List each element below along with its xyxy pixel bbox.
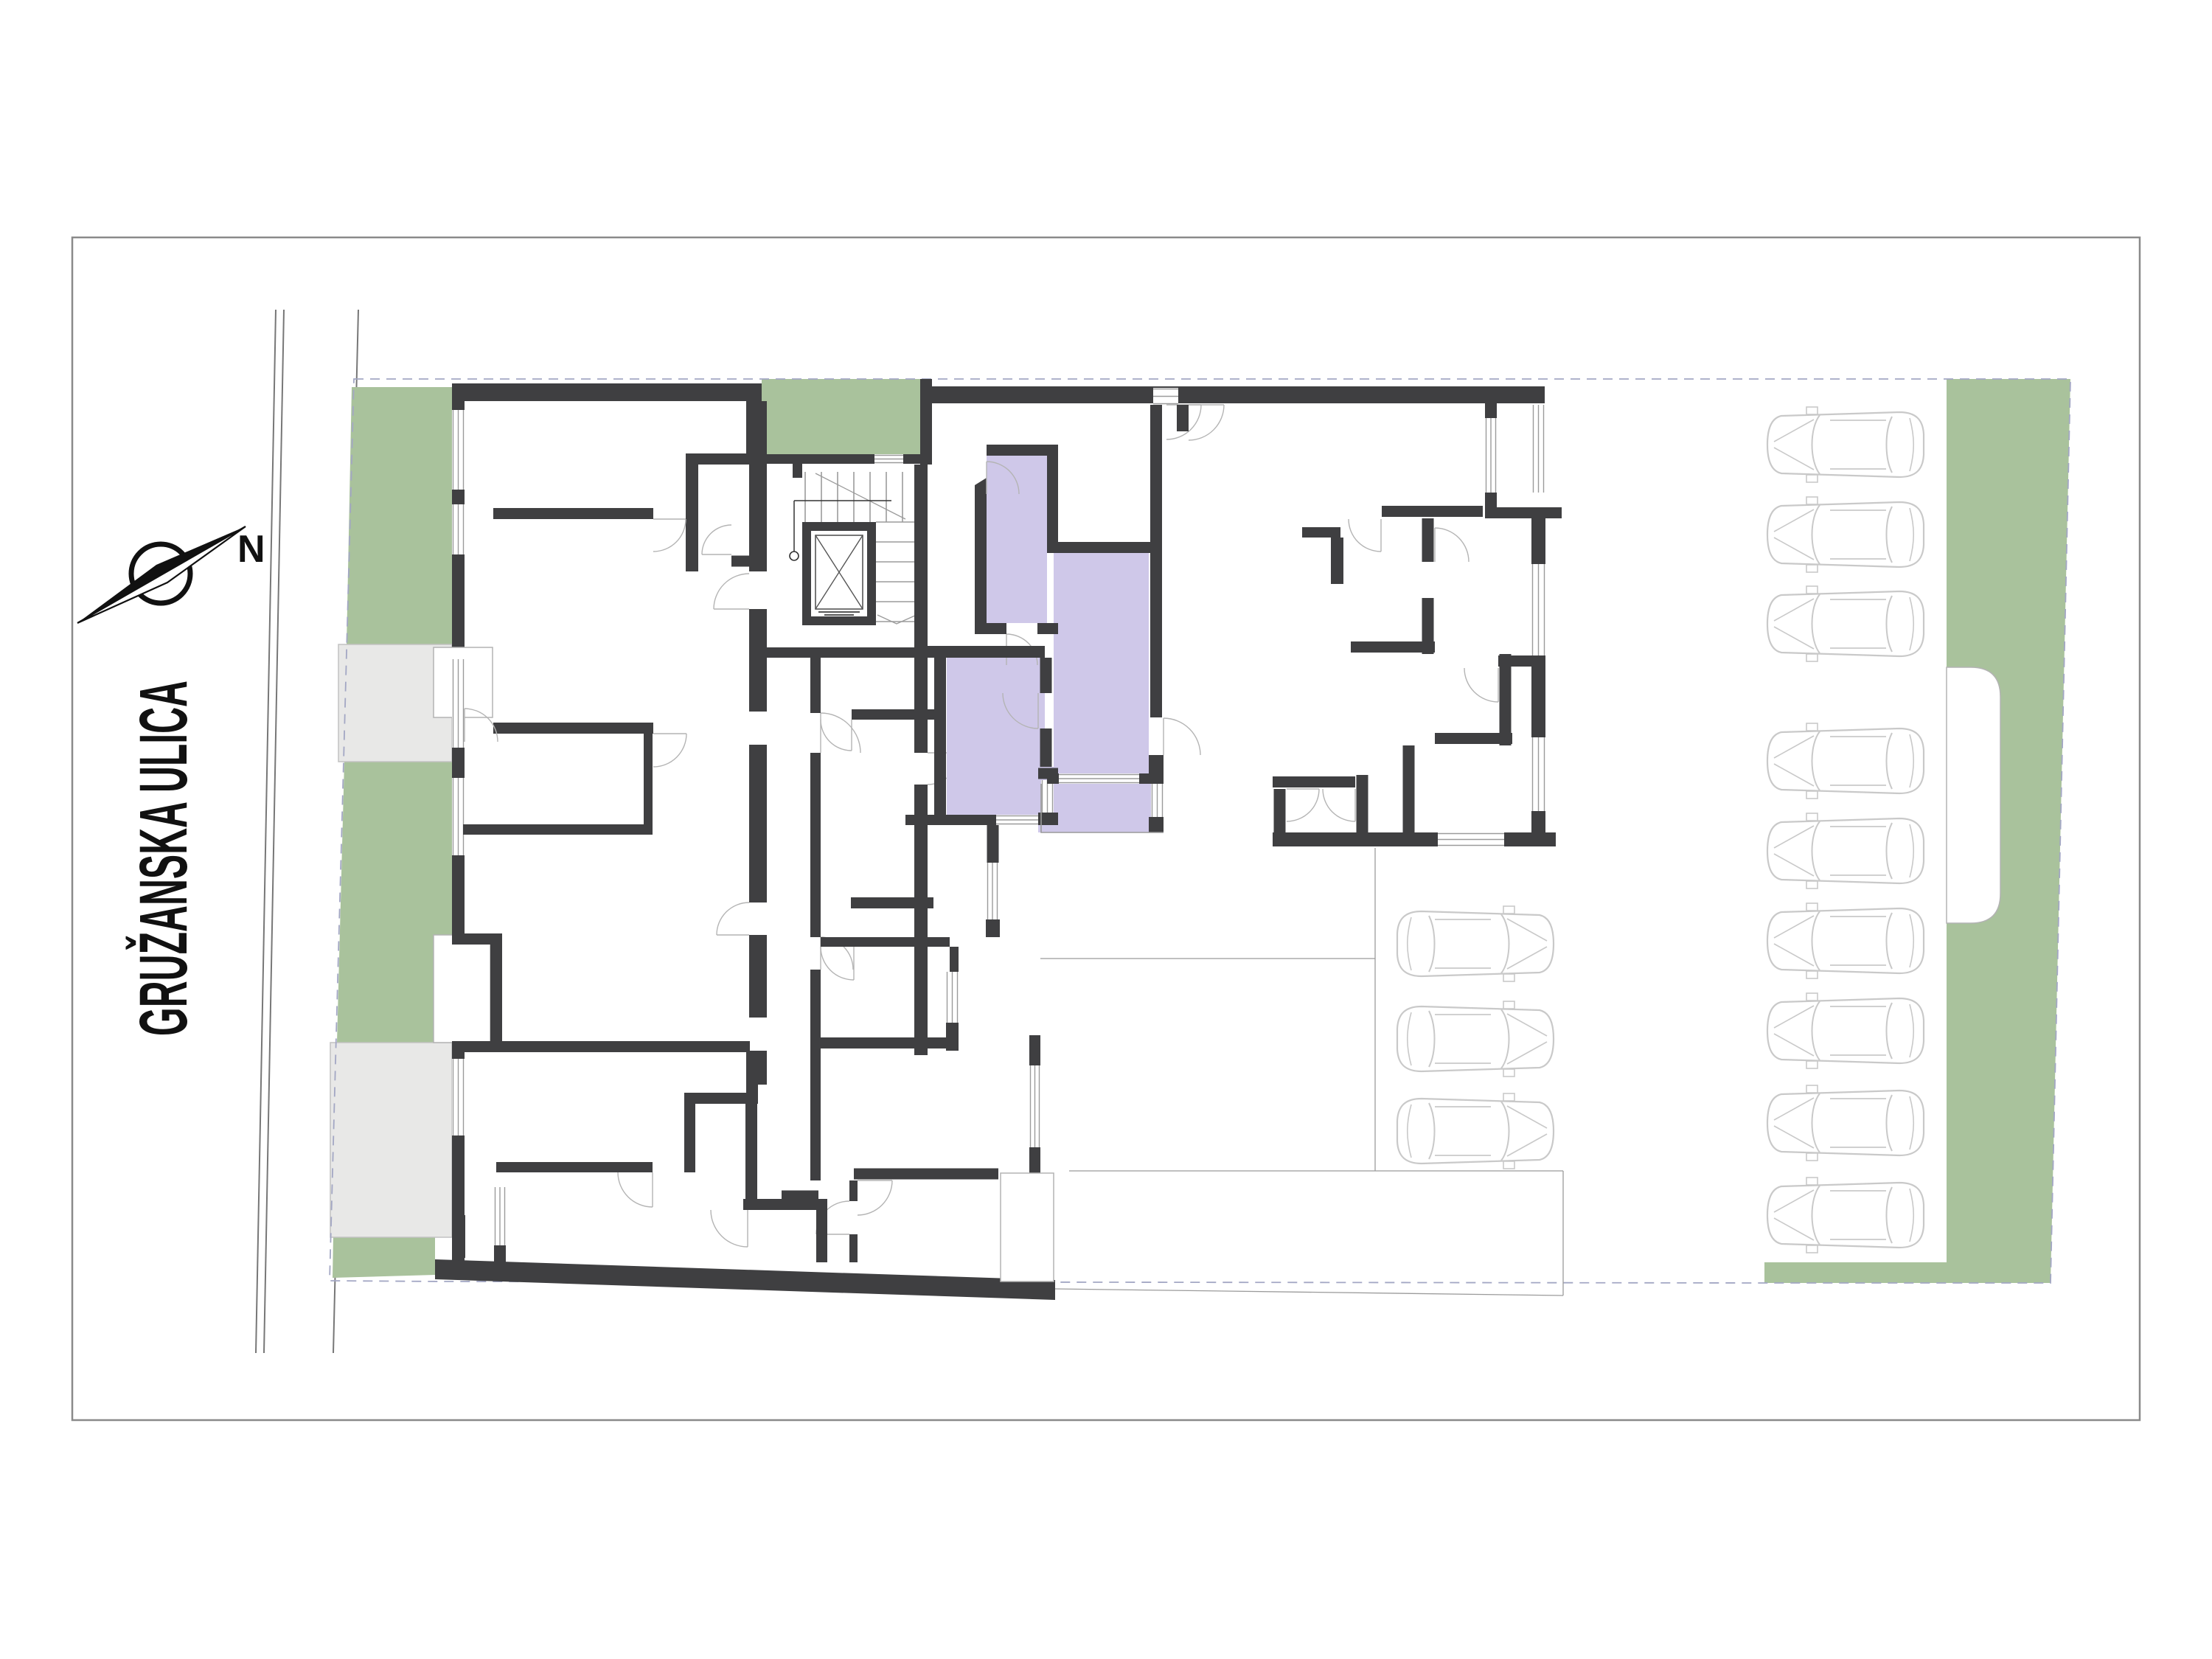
svg-text:GRUŽANSKA ULICA: GRUŽANSKA ULICA xyxy=(125,681,201,1036)
svg-text:N: N xyxy=(237,528,265,571)
